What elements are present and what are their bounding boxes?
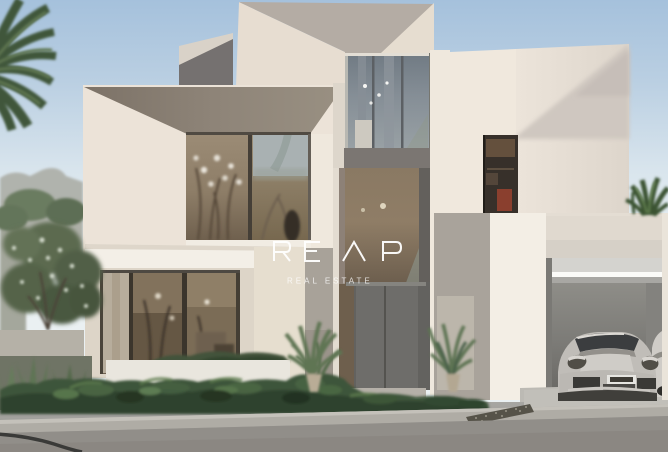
svg-text:REAL ESTATE: REAL ESTATE xyxy=(287,277,373,286)
